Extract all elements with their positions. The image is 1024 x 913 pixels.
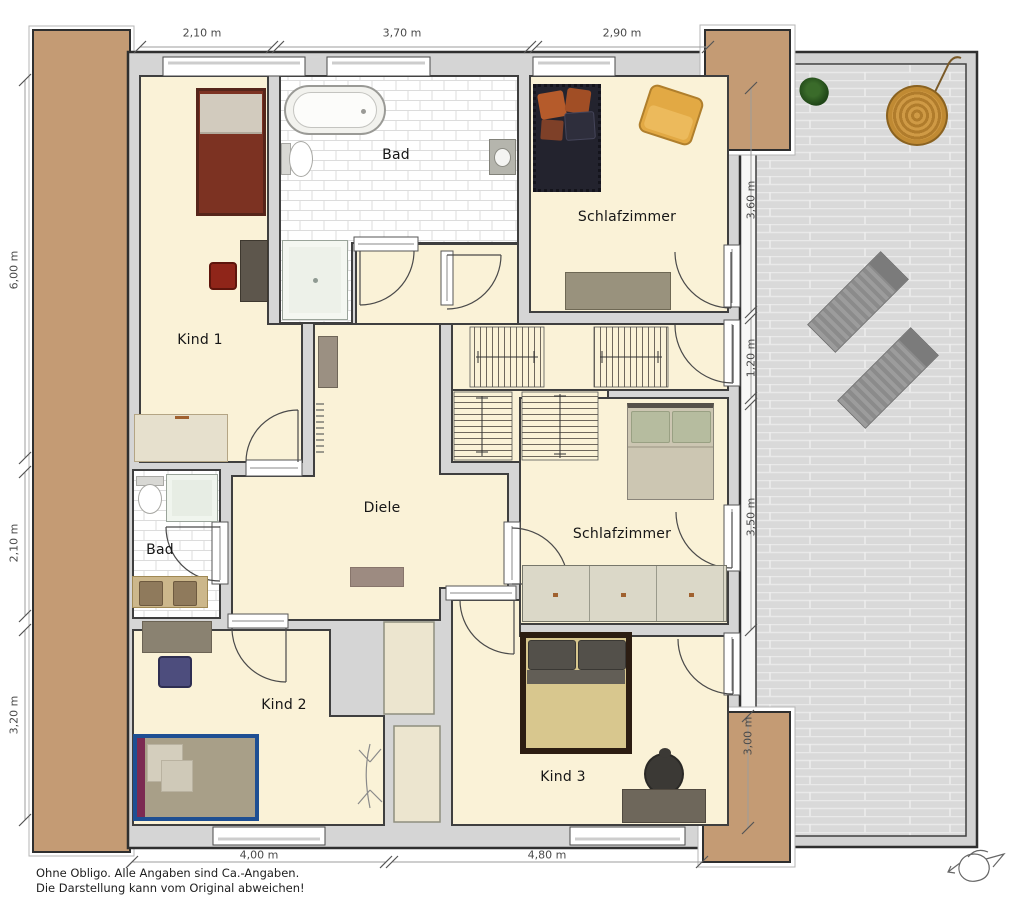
label-bad-top: Bad (382, 147, 410, 163)
window-schlafzimmer-top (533, 57, 615, 76)
floor-plan-canvas: Kind 1 Bad Schlafzimmer Diele Bad Kind 2… (0, 0, 1024, 913)
disclaimer-line-1: Ohne Obligo. Alle Angaben sind Ca.-Angab… (36, 866, 305, 881)
dim-left-3: 3,20 m (8, 696, 21, 735)
dim-right-1: 3,60 m (745, 181, 758, 220)
shower-top-icon (282, 240, 348, 320)
bed-kind1 (196, 88, 266, 216)
label-diele: Diele (364, 500, 401, 516)
toilet-small-icon (134, 476, 164, 514)
label-kind1: Kind 1 (177, 332, 222, 348)
dim-left-2: 2,10 m (8, 524, 21, 563)
label-schlafzimmer-bottom: Schlafzimmer (573, 526, 671, 542)
balcony-left (29, 26, 134, 856)
dim-top-3: 2,90 m (603, 27, 642, 40)
compass-north-icon (948, 850, 1004, 881)
hanging-chair-icon (886, 85, 948, 146)
desk-kind1 (240, 240, 268, 302)
dim-right-3: 3,50 m (745, 498, 758, 537)
doormat-diele (350, 567, 404, 587)
desk-kind2 (142, 621, 212, 653)
wardrobe-schlafzimmer-bottom (522, 565, 727, 622)
dim-left-1: 6,00 m (8, 251, 21, 290)
bed-schlafzimmer-bottom (627, 403, 714, 500)
dresser-schlafzimmer-top (565, 272, 671, 310)
disclaimer: Ohne Obligo. Alle Angaben sind Ca.-Angab… (36, 866, 305, 896)
label-schlafzimmer-top: Schlafzimmer (578, 209, 676, 225)
desk-kind3 (622, 789, 706, 823)
dim-right-4: 3,00 m (742, 717, 755, 756)
shower-small-icon (166, 474, 218, 522)
dim-bottom-2: 4,80 m (528, 849, 567, 862)
bathtub-icon (284, 85, 386, 135)
dim-bottom-1: 4,00 m (240, 849, 279, 862)
bed-kind3 (520, 632, 632, 754)
window-kind2 (213, 827, 325, 845)
vanity-small-bad (132, 576, 208, 608)
dim-right-2: 1,20 m (745, 339, 758, 378)
closet-top (384, 622, 434, 714)
chair-kind1 (209, 262, 237, 290)
disclaimer-line-2: Die Darstellung kann vom Original abweic… (36, 881, 305, 896)
dim-top-1: 2,10 m (183, 27, 222, 40)
label-bad-small: Bad (146, 542, 174, 558)
sideboard-kind1 (134, 414, 228, 462)
chair-kind2 (158, 656, 192, 688)
closet-bottom (394, 726, 440, 822)
label-kind3: Kind 3 (540, 769, 585, 785)
window-kind3 (570, 827, 685, 845)
toilet-top-icon (281, 139, 311, 177)
label-kind2: Kind 2 (261, 697, 306, 713)
dim-top-2: 3,70 m (383, 27, 422, 40)
bed-kind2 (133, 734, 259, 821)
corridor (356, 244, 518, 324)
window-bad-top (327, 57, 430, 76)
bed-schlafzimmer-top (533, 84, 601, 192)
window-kind1 (163, 57, 305, 76)
sink-top-icon (489, 139, 516, 175)
sideboard-diele (318, 336, 338, 388)
